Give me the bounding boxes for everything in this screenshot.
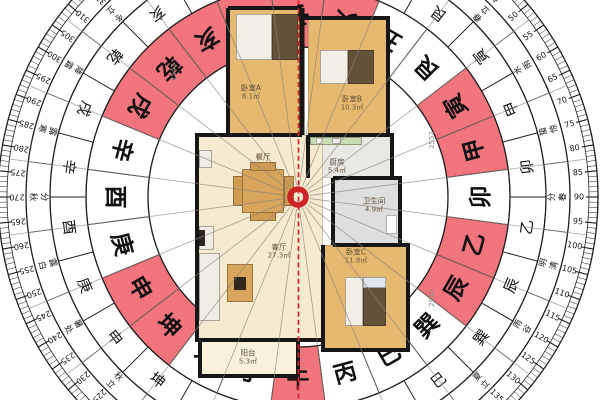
dimension-label: 2940 xyxy=(428,289,436,307)
room-area: 8.1㎡ xyxy=(241,92,261,100)
sector-line xyxy=(29,202,287,309)
room-label-bedroom-a: 卧室A8.1㎡ xyxy=(241,83,261,100)
room-area: 11.8㎡ xyxy=(345,256,368,264)
room-area: 4.9㎡ xyxy=(363,205,386,213)
fengshui-floorplan-compass: 子癸冬至癸丑小寒丑艮大寒艮寅立春寅甲雨水甲卯惊蛰卯乙春分乙辰清明辰巽谷雨巽巳立夏… xyxy=(0,0,600,400)
room-label-bedroom-b: 卧室B10.3㎡ xyxy=(341,94,364,111)
room-name: 卧室B xyxy=(342,94,362,103)
dimension-label: 2552 xyxy=(428,131,436,149)
room-area: 27.3㎡ xyxy=(268,251,291,259)
room-name: 厨房 xyxy=(329,157,344,166)
room-name: 卫生间 xyxy=(363,196,386,205)
sector-line xyxy=(9,199,286,235)
room-name: 阳台 xyxy=(240,348,255,357)
room-label-balcony: 阳台5.3㎡ xyxy=(239,348,257,365)
dimension-label: 1542 xyxy=(170,63,178,81)
room-area: 5.4㎡ xyxy=(328,166,346,174)
room-label-bathroom: 卫生间4.9㎡ xyxy=(363,196,386,213)
room-name: 餐厅 xyxy=(256,153,271,162)
room-area: 5.3㎡ xyxy=(239,357,257,365)
sector-line xyxy=(260,209,296,400)
room-label-dining: 餐厅 xyxy=(256,153,271,162)
sector-line xyxy=(310,199,587,235)
sector-line xyxy=(29,86,287,193)
sector-line xyxy=(9,159,286,195)
room-name: 客厅 xyxy=(272,242,287,251)
annotation-overlay-layer: 154225522940 xyxy=(0,0,600,400)
room-label-bedroom-c: 卧室C11.8㎡ xyxy=(345,247,368,264)
sector-line xyxy=(300,209,336,400)
room-label-kitchen: 厨房5.4㎡ xyxy=(328,157,346,174)
sector-line xyxy=(67,20,288,190)
room-name: 卧室C xyxy=(346,247,366,256)
room-name: 卧室A xyxy=(241,83,261,92)
room-label-living: 客厅27.3㎡ xyxy=(268,242,291,259)
room-area: 10.3㎡ xyxy=(341,103,364,111)
